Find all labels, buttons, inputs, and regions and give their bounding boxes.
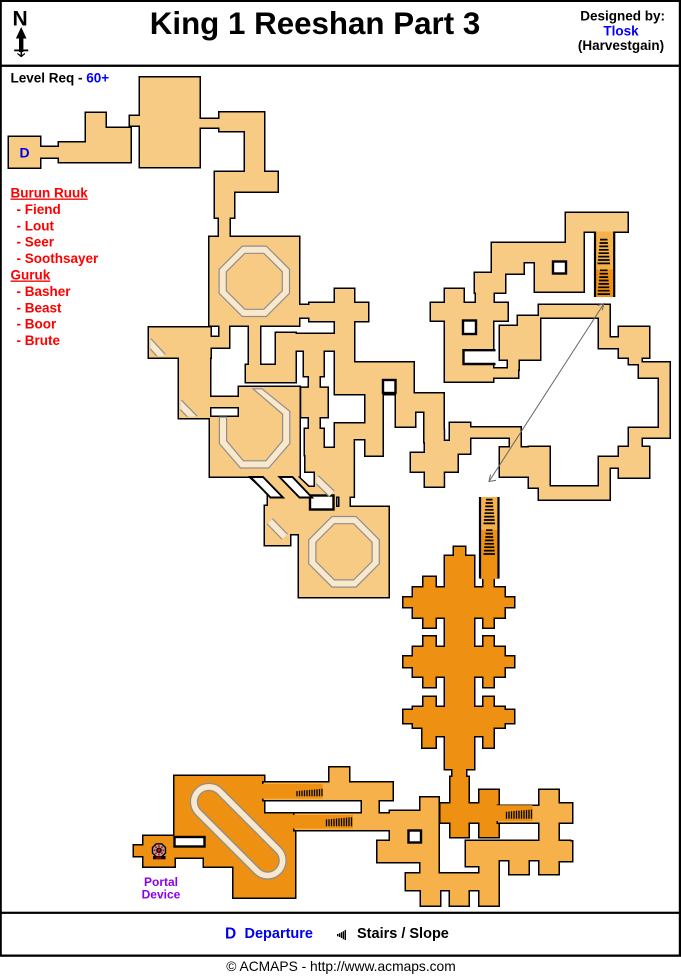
svg-text:Burun Ruuk: Burun Ruuk <box>11 186 89 201</box>
svg-text:Tlosk: Tlosk <box>603 24 639 39</box>
svg-text:Stairs / Slope: Stairs / Slope <box>357 926 449 942</box>
svg-text:King 1 Reeshan Part 3: King 1 Reeshan Part 3 <box>150 6 480 41</box>
svg-text:- Boor: - Boor <box>17 317 57 332</box>
svg-text:© ACMAPS - http://www.acmaps.c: © ACMAPS - http://www.acmaps.com <box>226 959 455 974</box>
svg-text:D: D <box>20 145 30 161</box>
svg-text:- Basher: - Basher <box>17 284 72 299</box>
svg-text:- Beast: - Beast <box>17 300 63 315</box>
svg-text:Device: Device <box>142 888 181 902</box>
svg-text:- Brute: - Brute <box>17 333 61 348</box>
svg-text:- Lout: - Lout <box>17 218 55 233</box>
svg-text:- Soothsayer: - Soothsayer <box>17 251 100 266</box>
svg-text:Designed by:: Designed by: <box>580 9 665 24</box>
svg-text:Level Req - 60+: Level Req - 60+ <box>11 71 110 86</box>
svg-text:- Seer: - Seer <box>17 235 55 250</box>
svg-text:- Fiend: - Fiend <box>17 202 61 217</box>
svg-text:N: N <box>13 8 28 31</box>
svg-text:Guruk: Guruk <box>11 268 51 283</box>
svg-text:(Harvestgain): (Harvestgain) <box>578 38 664 53</box>
svg-text:Departure: Departure <box>245 926 314 942</box>
svg-text:D: D <box>225 926 236 943</box>
